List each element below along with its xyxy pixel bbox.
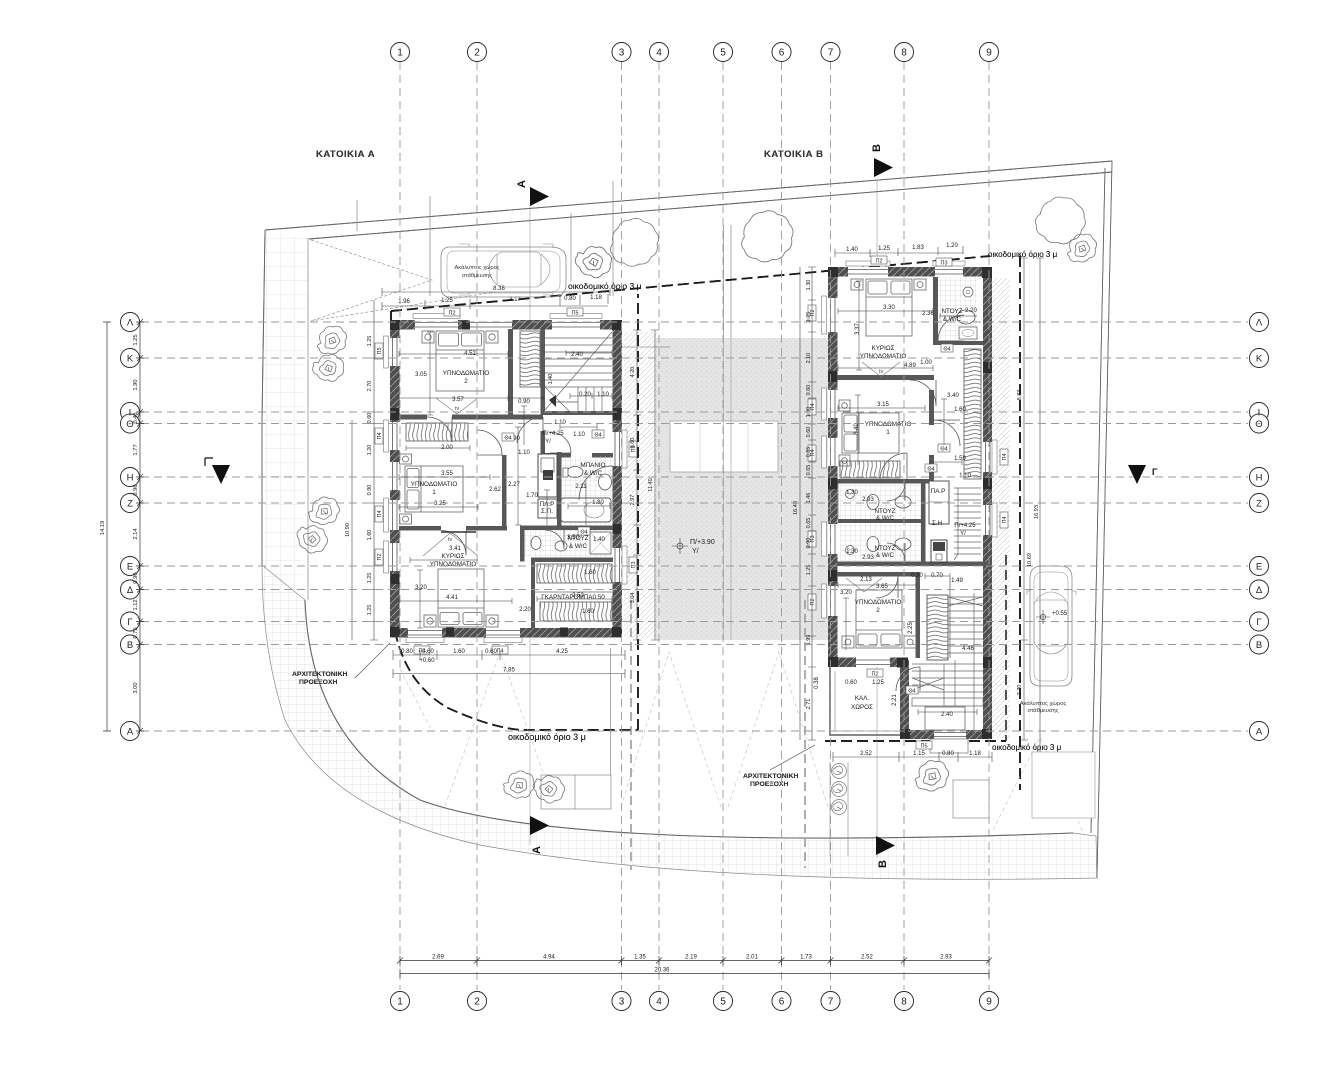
svg-text:Π2: Π2 (875, 259, 882, 265)
svg-text:Γ: Γ (127, 617, 132, 628)
svg-text:0.96: 0.96 (133, 484, 139, 495)
svg-text:2.25: 2.25 (908, 622, 914, 634)
svg-text:8.83: 8.83 (1017, 390, 1023, 401)
svg-text:ΑΡΧΙΤΕΚΤΟΝΙΚΗ: ΑΡΧΙΤΕΚΤΟΝΙΚΗ (743, 773, 798, 780)
svg-text:4.46: 4.46 (962, 646, 974, 652)
svg-text:Α: Α (127, 727, 134, 738)
svg-text:6: 6 (779, 48, 785, 59)
svg-text:3.50: 3.50 (567, 535, 579, 541)
svg-text:2.93: 2.93 (862, 555, 874, 561)
svg-text:στάθμευσης: στάθμευσης (462, 272, 492, 279)
svg-text:ΜΠΑΝΙΟ: ΜΠΑΝΙΟ (580, 462, 605, 469)
svg-text:1.25: 1.25 (872, 680, 884, 686)
svg-text:Π5: Π5 (571, 311, 578, 317)
svg-text:Π5: Π5 (377, 347, 383, 354)
svg-text:Π/+3.90: Π/+3.90 (690, 539, 715, 546)
svg-text:1.10: 1.10 (597, 392, 609, 398)
svg-text:1.60: 1.60 (584, 570, 596, 576)
svg-text:Λ: Λ (127, 318, 134, 329)
svg-text:0.85: 0.85 (806, 447, 812, 458)
svg-text:0.75: 0.75 (133, 627, 139, 638)
svg-text:2.69: 2.69 (432, 955, 444, 961)
svg-text:1.10: 1.10 (959, 473, 971, 479)
svg-text:Θ4: Θ4 (927, 467, 934, 473)
svg-text:0.90: 0.90 (518, 399, 530, 405)
svg-text:Ζ: Ζ (1256, 499, 1262, 510)
svg-text:1.83: 1.83 (912, 245, 924, 251)
svg-text:3.05: 3.05 (415, 372, 427, 378)
svg-text:ΠΑ.Ρ: ΠΑ.Ρ (931, 488, 946, 495)
svg-text:4: 4 (656, 997, 662, 1008)
svg-text:0.38: 0.38 (814, 677, 820, 689)
svg-text:2.93: 2.93 (862, 497, 874, 503)
svg-text:Θ4: Θ4 (943, 347, 950, 353)
svg-text:στάθμευσης: στάθμευσης (1027, 707, 1058, 714)
svg-text:1.73: 1.73 (800, 955, 812, 961)
svg-text:1.60: 1.60 (453, 649, 465, 655)
svg-text:1.15: 1.15 (913, 751, 925, 757)
svg-text:0.60: 0.60 (485, 649, 497, 655)
svg-text:2.13: 2.13 (860, 577, 872, 583)
svg-text:1.20: 1.20 (367, 445, 373, 456)
svg-text:Γ: Γ (1256, 617, 1261, 628)
svg-text:1.99: 1.99 (806, 635, 812, 646)
svg-text:Π4: Π4 (377, 510, 383, 517)
svg-text:+0.60: +0.60 (419, 658, 435, 664)
svg-text:Ι: Ι (1258, 408, 1261, 419)
svg-text:2.14: 2.14 (133, 528, 139, 540)
svg-text:0.60: 0.60 (806, 385, 812, 396)
svg-text:Θ4: Θ4 (504, 436, 511, 442)
svg-text:Ι: Ι (129, 408, 132, 419)
svg-text:ΥΠΝΟΔΩΜΑΤΙΟ: ΥΠΝΟΔΩΜΑΤΙΟ (443, 370, 490, 377)
svg-text:5: 5 (720, 48, 726, 59)
svg-text:2.93: 2.93 (940, 955, 952, 961)
svg-text:2.50: 2.50 (572, 593, 584, 599)
svg-text:3.55: 3.55 (441, 471, 453, 477)
svg-text:Υ/: Υ/ (960, 531, 966, 537)
svg-text:ΥΠΝΟΔΩΜΑΤΙΟ: ΥΠΝΟΔΩΜΑΤΙΟ (411, 481, 458, 488)
svg-text:1.30: 1.30 (846, 549, 858, 555)
svg-text:7: 7 (828, 48, 834, 59)
svg-text:3.20: 3.20 (840, 590, 852, 596)
svg-text:2.21: 2.21 (892, 694, 898, 706)
svg-text:Α: Α (1256, 727, 1263, 738)
svg-text:1.12: 1.12 (133, 599, 139, 610)
svg-text:ΚΥΡΙΩΣ: ΚΥΡΙΩΣ (442, 553, 465, 560)
svg-text:& W/C: & W/C (584, 470, 603, 477)
svg-text:Γ: Γ (1152, 467, 1158, 477)
svg-text:1: 1 (397, 48, 403, 59)
svg-text:0.60: 0.60 (845, 680, 857, 686)
svg-text:20.36: 20.36 (654, 968, 670, 974)
svg-text:2.36: 2.36 (922, 311, 934, 317)
svg-text:0.60: 0.60 (422, 649, 434, 655)
svg-text:0.60: 0.60 (367, 413, 373, 424)
svg-text:Π/+4.25: Π/+4.25 (542, 431, 564, 437)
svg-text:8: 8 (901, 997, 907, 1008)
svg-text:1.10: 1.10 (573, 432, 585, 438)
svg-text:Η: Η (1256, 473, 1263, 484)
svg-text:0.48: 0.48 (133, 412, 139, 423)
svg-text:tv: tv (455, 406, 460, 412)
svg-text:3.20: 3.20 (415, 585, 427, 591)
svg-text:3.25: 3.25 (434, 501, 446, 507)
svg-text:Θ4: Θ4 (908, 689, 915, 695)
svg-text:2.27: 2.27 (508, 482, 520, 488)
svg-text:Π4: Π4 (1002, 516, 1008, 523)
svg-text:Θ: Θ (1255, 419, 1262, 430)
svg-text:ΥΠΝΟΔΩΜΑΤΙΟ: ΥΠΝΟΔΩΜΑΤΙΟ (430, 561, 477, 568)
svg-text:1: 1 (432, 489, 436, 496)
svg-text:8: 8 (901, 48, 907, 59)
svg-text:B: B (871, 144, 883, 152)
svg-text:B: B (877, 860, 889, 868)
svg-text:2: 2 (464, 378, 468, 385)
svg-text:Θ4: Θ4 (940, 447, 947, 453)
svg-text:1.25: 1.25 (367, 573, 373, 584)
svg-text:1.70: 1.70 (526, 493, 538, 499)
svg-text:Ε: Ε (1256, 562, 1262, 573)
svg-text:0.65: 0.65 (806, 465, 812, 476)
svg-text:ΝΤΟΥΖ: ΝΤΟΥΖ (874, 508, 895, 515)
svg-text:οικοδομικό όριο 3 μ: οικοδομικό όριο 3 μ (568, 281, 642, 291)
svg-text:οικοδομικό όριο 3 μ: οικοδομικό όριο 3 μ (988, 250, 1058, 259)
svg-text:1.59: 1.59 (954, 456, 966, 462)
svg-text:11.40: 11.40 (648, 478, 654, 491)
svg-text:4.25: 4.25 (556, 649, 568, 655)
svg-text:1.18: 1.18 (590, 295, 602, 301)
svg-text:0.20: 0.20 (579, 392, 591, 398)
svg-text:2.20: 2.20 (965, 308, 977, 314)
svg-text:1.77: 1.77 (133, 444, 139, 455)
svg-text:Θ4: Θ4 (580, 530, 587, 536)
svg-text:1.25: 1.25 (878, 246, 890, 252)
svg-text:16.93: 16.93 (1034, 505, 1040, 519)
svg-text:1.25: 1.25 (367, 605, 373, 616)
svg-text:1.10: 1.10 (518, 450, 530, 456)
svg-text:0.65: 0.65 (806, 518, 812, 529)
svg-text:Λ: Λ (1256, 318, 1263, 329)
svg-text:Υ/: Υ/ (692, 548, 699, 555)
svg-text:7: 7 (828, 997, 834, 1008)
svg-text:3.41: 3.41 (449, 546, 461, 552)
svg-text:0.80: 0.80 (401, 649, 413, 655)
svg-text:0.80: 0.80 (942, 751, 954, 757)
svg-text:0.90: 0.90 (806, 538, 812, 549)
svg-text:ΚΥΡΙΩΣ: ΚΥΡΙΩΣ (872, 345, 895, 352)
svg-text:6: 6 (779, 997, 785, 1008)
svg-text:ΠΡΟΕΞΟΧΗ: ΠΡΟΕΞΟΧΗ (299, 679, 337, 686)
svg-text:3: 3 (619, 48, 625, 59)
svg-text:1.60: 1.60 (582, 609, 594, 615)
svg-text:ΥΠΝΟΔΩΜΑΤΙΟ: ΥΠΝΟΔΩΜΑΤΙΟ (860, 353, 907, 360)
svg-text:Δ: Δ (127, 585, 134, 596)
svg-text:Ακάλυπτος χώρος: Ακάλυπτος χώρος (1020, 700, 1067, 707)
svg-text:Β: Β (127, 640, 133, 651)
svg-text:Υ/: Υ/ (545, 439, 551, 445)
svg-text:9: 9 (986, 997, 992, 1008)
svg-text:2.52: 2.52 (861, 955, 873, 961)
svg-text:1: 1 (397, 997, 403, 1008)
svg-text:ΥΠΝΟΔΩΜΑΤΙΟ: ΥΠΝΟΔΩΜΑΤΙΟ (855, 599, 902, 606)
svg-text:+0.55: +0.55 (1052, 611, 1068, 617)
svg-text:1.46: 1.46 (806, 493, 812, 504)
svg-text:Ζ: Ζ (127, 499, 133, 510)
svg-text:Π/+4.25: Π/+4.25 (954, 523, 976, 529)
svg-text:14.19: 14.19 (100, 521, 106, 536)
svg-text:10.90: 10.90 (345, 523, 351, 537)
svg-text:ΧΩΡΟΣ: ΧΩΡΟΣ (851, 704, 873, 711)
svg-text:4.94: 4.94 (543, 955, 555, 961)
svg-text:οικοδομικό όριο 3 μ: οικοδομικό όριο 3 μ (508, 732, 586, 742)
svg-text:4.20: 4.20 (630, 367, 636, 378)
svg-text:3.15: 3.15 (877, 402, 889, 408)
svg-text:A: A (516, 180, 528, 188)
svg-text:Θ4: Θ4 (594, 433, 601, 439)
svg-text:3.30: 3.30 (883, 305, 895, 311)
svg-text:3: 3 (619, 997, 625, 1008)
svg-text:1.30: 1.30 (806, 280, 812, 291)
svg-text:A: A (531, 846, 543, 854)
svg-text:1.18: 1.18 (969, 751, 981, 757)
svg-text:Κ: Κ (127, 354, 134, 365)
svg-text:ΠΡΟΕΞΟΧΗ: ΠΡΟΕΞΟΧΗ (750, 781, 788, 788)
svg-text:0.90: 0.90 (133, 572, 139, 583)
svg-text:2.62: 2.62 (489, 487, 501, 493)
svg-text:2: 2 (474, 48, 480, 59)
svg-text:Π2: Π2 (377, 553, 383, 560)
svg-text:Η: Η (127, 473, 134, 484)
svg-text:& W/C: & W/C (876, 552, 895, 559)
svg-text:4: 4 (656, 48, 662, 59)
svg-text:2.19: 2.19 (685, 955, 697, 961)
svg-text:3.17: 3.17 (509, 297, 521, 303)
svg-text:& W/C: & W/C (876, 515, 895, 522)
svg-text:1.40: 1.40 (846, 247, 858, 253)
svg-text:Π2: Π2 (810, 598, 816, 605)
svg-text:2.71: 2.71 (806, 699, 812, 710)
svg-text:2: 2 (474, 997, 480, 1008)
svg-text:Σ.Η: Σ.Η (932, 520, 943, 527)
svg-text:1: 1 (886, 429, 890, 436)
svg-text:2.01: 2.01 (746, 955, 758, 961)
svg-text:2.20: 2.20 (519, 607, 531, 613)
svg-text:tv: tv (448, 537, 453, 543)
svg-text:Π3: Π3 (631, 561, 637, 568)
svg-text:ΚΑΤΟΙΚΙΑ Α: ΚΑΤΟΙΚΙΑ Α (316, 149, 375, 160)
svg-text:Ε: Ε (127, 562, 133, 573)
svg-text:1.49: 1.49 (951, 578, 963, 584)
svg-text:1.25: 1.25 (806, 312, 812, 323)
svg-text:2.52: 2.52 (860, 751, 872, 757)
svg-text:Π3: Π3 (940, 261, 947, 267)
svg-text:3.40: 3.40 (947, 393, 959, 399)
svg-text:Β: Β (1256, 640, 1262, 651)
svg-text:Π4: Π4 (377, 432, 383, 439)
svg-text:2.70: 2.70 (367, 381, 373, 392)
svg-text:οικοδομικό όριο 3 μ: οικοδομικό όριο 3 μ (992, 743, 1062, 752)
svg-text:1.40: 1.40 (548, 374, 554, 385)
svg-text:1.60: 1.60 (367, 530, 373, 541)
svg-text:1.25: 1.25 (367, 336, 373, 347)
svg-text:0.80: 0.80 (911, 573, 923, 579)
svg-text:5: 5 (720, 997, 726, 1008)
svg-text:10.69: 10.69 (1027, 553, 1033, 567)
svg-text:7.85: 7.85 (503, 668, 515, 674)
svg-text:2: 2 (876, 607, 880, 614)
svg-text:3.00: 3.00 (133, 682, 139, 693)
svg-text:Π5: Π5 (920, 744, 927, 750)
svg-text:1.35: 1.35 (634, 955, 646, 961)
svg-text:3.40: 3.40 (854, 423, 860, 435)
svg-text:1.90: 1.90 (133, 379, 139, 390)
svg-text:0.90: 0.90 (367, 485, 373, 496)
svg-text:tv: tv (879, 369, 884, 375)
svg-text:9: 9 (986, 48, 992, 59)
svg-text:2.97: 2.97 (630, 495, 636, 506)
svg-text:Κ: Κ (1256, 354, 1263, 365)
svg-text:Π2: Π2 (448, 311, 455, 317)
svg-text:0.80: 0.80 (564, 296, 576, 302)
svg-text:7.70: 7.70 (1017, 685, 1023, 696)
svg-text:0.60: 0.60 (630, 438, 636, 449)
svg-text:1.10: 1.10 (554, 420, 566, 426)
svg-text:1.25: 1.25 (441, 298, 453, 304)
svg-text:2.40: 2.40 (941, 712, 953, 718)
svg-text:ΝΤΟΥΖ: ΝΤΟΥΖ (874, 545, 895, 552)
svg-text:2.11: 2.11 (575, 484, 587, 490)
svg-text:3.04: 3.04 (630, 593, 636, 604)
svg-text:Π4: Π4 (1002, 453, 1008, 460)
svg-text:1.40: 1.40 (593, 537, 605, 543)
svg-text:& W/C: & W/C (569, 543, 588, 550)
svg-text:1.30: 1.30 (846, 490, 858, 496)
svg-text:0.60: 0.60 (806, 427, 812, 438)
svg-text:ΑΡΧΙΤΕΚΤΟΝΙΚΗ: ΑΡΧΙΤΕΚΤΟΝΙΚΗ (292, 671, 347, 678)
svg-text:Δ: Δ (1256, 585, 1263, 596)
svg-text:4.41: 4.41 (446, 595, 458, 601)
svg-text:1.25: 1.25 (133, 334, 139, 345)
svg-text:Ακάλυπτος χώρος: Ακάλυπτος χώρος (455, 264, 500, 271)
svg-text:Π2: Π2 (871, 672, 878, 678)
svg-text:1.20: 1.20 (946, 243, 958, 249)
svg-text:1.00: 1.00 (920, 360, 932, 366)
svg-text:ΝΤΟΥΖ: ΝΤΟΥΖ (941, 308, 962, 315)
svg-text:ΚΑΤΟΙΚΙΑ Β: ΚΑΤΟΙΚΙΑ Β (764, 149, 823, 160)
svg-text:3.37: 3.37 (855, 323, 861, 335)
svg-text:ΚΑΛ.: ΚΑΛ. (855, 695, 870, 702)
